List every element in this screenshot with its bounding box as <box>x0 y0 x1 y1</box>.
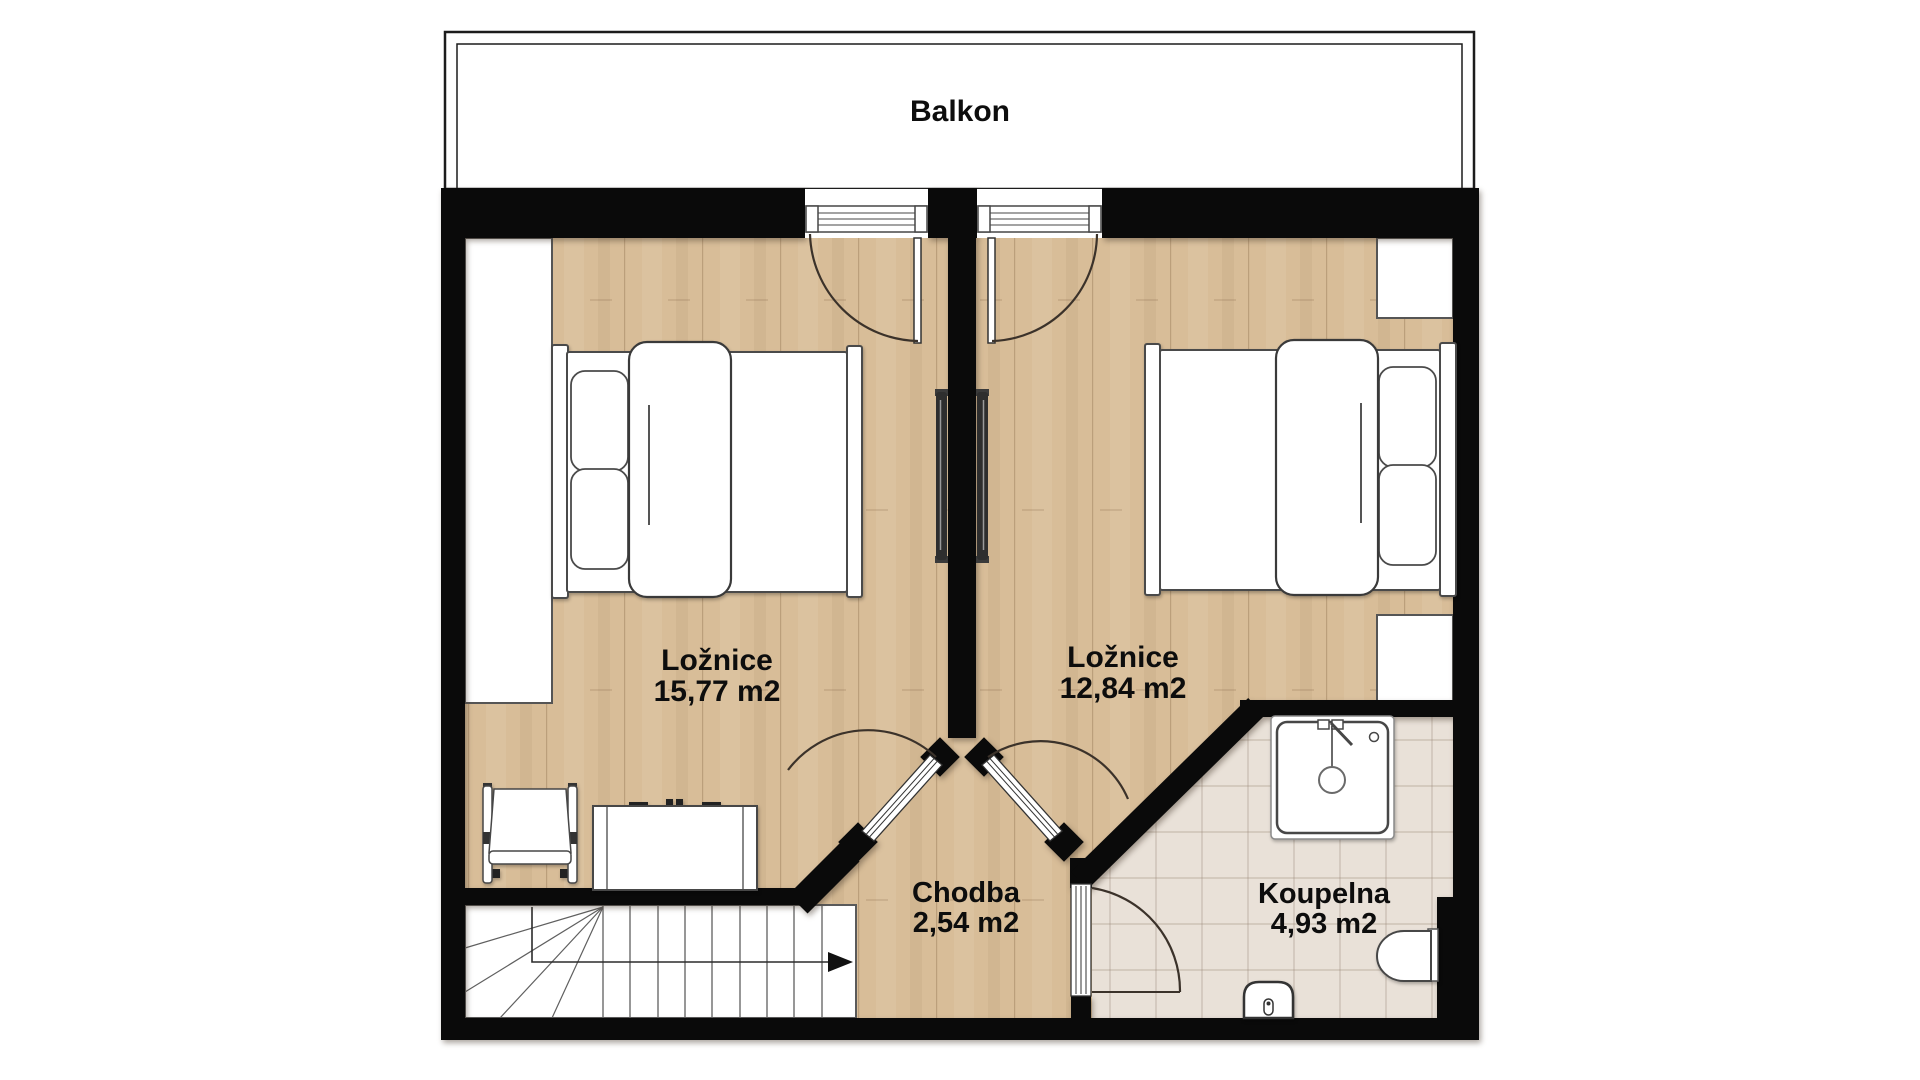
door-leaf <box>988 238 995 343</box>
duvet <box>629 342 731 597</box>
wardrobe-left-bedroom <box>465 238 552 703</box>
room-name: Koupelna <box>1224 879 1424 909</box>
pillow <box>571 469 628 569</box>
room-name: Ložnice <box>617 645 817 676</box>
door-leaf <box>914 238 921 343</box>
pillow <box>1379 367 1436 467</box>
shower <box>1271 716 1394 839</box>
pillow <box>571 371 628 471</box>
staircase <box>465 905 856 1018</box>
room-area: 15,77 m2 <box>617 676 817 707</box>
room-label-bedroom-left: Ložnice 15,77 m2 <box>617 645 817 707</box>
room-area: 12,84 m2 <box>1023 673 1223 704</box>
tv-left-bedroom <box>935 389 948 563</box>
room-label-bedroom-right: Ložnice 12,84 m2 <box>1023 642 1223 704</box>
duvet <box>1276 340 1378 595</box>
dresser <box>593 799 757 890</box>
pillow <box>1379 465 1436 565</box>
wardrobe-right-top <box>1377 238 1453 318</box>
room-area: 2,54 m2 <box>866 908 1066 938</box>
room-area: 4,93 m2 <box>1224 909 1424 939</box>
tv-right-bedroom <box>976 389 989 563</box>
toilet <box>1244 982 1293 1018</box>
room-label-hallway: Chodba 2,54 m2 <box>866 878 1066 938</box>
wardrobe-right-bottom <box>1377 615 1453 702</box>
balcony-name: Balkon <box>910 95 1010 128</box>
room-name: Ložnice <box>1023 642 1223 673</box>
room-label-bathroom: Koupelna 4,93 m2 <box>1224 879 1424 939</box>
room-name: Chodba <box>866 878 1066 908</box>
shower-drain <box>1319 767 1345 793</box>
floorplan-canvas: Balkon Ložnice 15,77 m2 Ložnice 12,84 m2… <box>0 0 1920 1080</box>
bed-right-bedroom <box>1145 340 1456 596</box>
bed-left-bedroom <box>552 342 862 598</box>
balcony-label: Balkon <box>860 96 1060 127</box>
